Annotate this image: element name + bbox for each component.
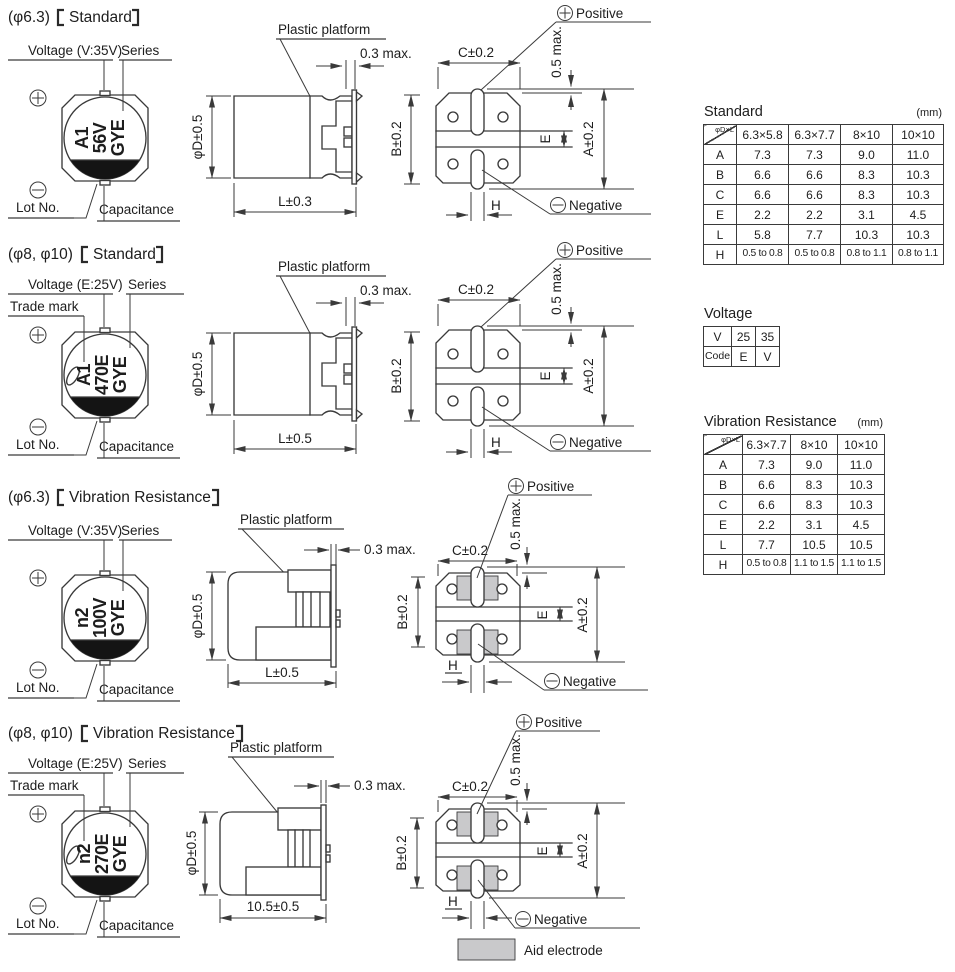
hole <box>498 159 508 169</box>
diameter-dim: φD±0.5 <box>190 352 205 397</box>
top-terminal-tab <box>100 571 110 576</box>
a-dim: A±0.2 <box>581 121 596 156</box>
col-header: 6.3×5.8 <box>737 125 789 145</box>
cell: 3.1 <box>841 205 893 225</box>
cell: 10.3 <box>893 185 944 205</box>
left-lenticular-bracket <box>82 726 88 741</box>
plus-icon <box>30 806 46 822</box>
aid-electrode-pad <box>457 866 471 890</box>
cell: 9.0 <box>841 145 893 165</box>
cell: 10.3 <box>838 475 885 495</box>
positive-terminal-slot <box>471 567 484 607</box>
platform-bottom-step <box>256 627 331 660</box>
plus-icon <box>558 243 573 258</box>
vibration-dimension-table: φD×L 6.3×7.7 8×10 10×10 A7.39.011.0 B6.6… <box>703 434 885 575</box>
trademark-label: Trade mark <box>10 299 79 314</box>
row-label: E <box>704 205 737 225</box>
hole <box>447 584 457 594</box>
positive-label: Positive <box>576 6 623 21</box>
length-dim: L±0.5 <box>265 665 299 680</box>
protrusion-dim: 0.5 max. <box>508 498 523 550</box>
hole <box>447 820 457 830</box>
positive-label: Positive <box>535 715 582 730</box>
negative-terminal-slot <box>471 150 484 189</box>
section-3-bottom-view: C±0.2 0.5 max. A±0.2 E H Positive Negati… <box>436 479 648 694</box>
bottom-terminal-tab <box>100 181 110 186</box>
cell: 0.8 to 1.1 <box>841 245 893 265</box>
minus-icon <box>551 435 566 450</box>
platform-top-step <box>288 570 331 592</box>
plus-icon <box>558 6 573 21</box>
row-label: V <box>704 327 732 347</box>
clearance-dim: 0.3 max. <box>360 283 412 298</box>
voltage-label: Voltage (V:35V) <box>28 523 122 538</box>
vibration-table-title: Vibration Resistance <box>704 414 837 430</box>
clearance-dim: 0.3 max. <box>364 542 416 557</box>
cell: 35 <box>756 327 780 347</box>
hole <box>448 112 458 122</box>
minus-icon <box>516 912 531 927</box>
row-label: H <box>704 245 737 265</box>
cell: 10.3 <box>838 495 885 515</box>
marking-cap-voltage: 270E <box>92 833 112 874</box>
vibration-table-header: Vibration Resistance (mm) <box>704 414 883 430</box>
section-3-top-view: n2 100V GYE Voltage (V:35V) Series Lot N… <box>8 523 180 701</box>
cell: E <box>732 347 756 367</box>
cell: 7.3 <box>737 145 789 165</box>
aid-electrode-pad <box>484 630 498 654</box>
capacitance-label: Capacitance <box>99 918 174 933</box>
terminal-tip <box>357 173 363 182</box>
lot-label: Lot No. <box>16 916 60 931</box>
row-label: L <box>704 535 743 555</box>
section-4-title-name: Vibration Resistance <box>93 725 235 742</box>
positive-label: Positive <box>527 479 574 494</box>
series-label: Series <box>128 277 167 292</box>
positive-callout: Positive <box>477 479 592 579</box>
hole <box>497 820 507 830</box>
plus-icon <box>517 715 532 730</box>
section-4-bottom-view: C±0.2 0.5 max. A±0.2 E H Positive Negati… <box>436 715 640 930</box>
protrusion-dim: 0.5 max. <box>549 263 564 315</box>
minus-icon <box>30 419 46 435</box>
plus-icon <box>30 570 46 586</box>
standard-table: Standard (mm) φD×L 6.3×5.8 6.3×7.7 8×10 … <box>703 104 943 265</box>
hole <box>447 634 457 644</box>
length-dim: 10.5±0.5 <box>247 899 299 914</box>
col-header: 8×10 <box>791 435 838 455</box>
cell: 8.3 <box>791 495 838 515</box>
aid-electrode-pad <box>457 630 471 654</box>
section-2-top-view: A1 470E GYE Voltage (E:25V) Series Trade… <box>8 277 184 458</box>
cell: V <box>756 347 780 367</box>
standard-table-unit: (mm) <box>916 107 942 119</box>
cell: 9.0 <box>791 455 838 475</box>
cell: 2.2 <box>789 205 841 225</box>
col-header: 6.3×7.7 <box>743 435 791 455</box>
corner-cell: φD×L <box>704 125 737 145</box>
section-1-title: (φ6.3) Standard <box>8 9 138 26</box>
minus-icon <box>30 662 46 678</box>
left-lenticular-bracket <box>82 247 88 262</box>
cell: 5.8 <box>737 225 789 245</box>
cell: 10.5 <box>791 535 838 555</box>
e-dim: E <box>538 371 553 380</box>
marking-series: GYE <box>110 835 130 872</box>
cell: 7.3 <box>743 455 791 475</box>
marking-cap-voltage: 470E <box>92 354 112 395</box>
plastic-platform-label: Plastic platform <box>240 512 332 527</box>
capacitance-label: Capacitance <box>99 439 174 454</box>
hole <box>497 870 507 880</box>
marking-series: GYE <box>108 119 128 156</box>
plastic-platform-label: Plastic platform <box>278 22 370 37</box>
left-lenticular-bracket <box>58 10 64 25</box>
c-dim: C±0.2 <box>452 779 488 794</box>
plus-icon <box>30 327 46 343</box>
minus-icon <box>30 182 46 198</box>
col-header: 10×10 <box>838 435 885 455</box>
row-label: C <box>704 185 737 205</box>
negative-terminal-slot <box>471 624 484 662</box>
e-dim: E <box>538 134 553 143</box>
capacitor-body <box>234 333 352 415</box>
cell: 6.6 <box>789 165 841 185</box>
clearance-dim: 0.3 max. <box>360 46 412 61</box>
voltage-code-table: V2535 CodeEV <box>703 326 780 367</box>
cell: 7.3 <box>789 145 841 165</box>
plastic-platform-label: Plastic platform <box>278 259 370 274</box>
positive-callout: Positive <box>481 243 651 328</box>
marking-cap-voltage: 100V <box>90 597 110 638</box>
cell: 10.3 <box>841 225 893 245</box>
b-dim: B±0.2 <box>389 121 404 156</box>
positive-terminal-slot <box>471 89 484 135</box>
protrusion-dim: 0.5 max. <box>508 734 523 786</box>
platform-column <box>296 592 320 627</box>
section-1: (φ6.3) Standard A1 56V GYE Voltage (V:35… <box>8 6 651 222</box>
row-label: A <box>704 455 743 475</box>
positive-terminal-slot <box>471 326 484 372</box>
right-lenticular-bracket <box>212 490 218 505</box>
capacitance-label: Capacitance <box>99 682 174 697</box>
diameter-dim: φD±0.5 <box>190 115 205 160</box>
section-3-title-prefix: (φ6.3) <box>8 489 50 506</box>
hole <box>498 396 508 406</box>
length-dim: L±0.5 <box>278 431 312 446</box>
capacitance-label: Capacitance <box>99 202 174 217</box>
section-1-side-view: Plastic platform 0.3 max. φD±0.5 L±0.3 B… <box>190 22 420 217</box>
negative-label: Negative <box>569 198 622 213</box>
hole <box>448 349 458 359</box>
negative-label: Negative <box>563 674 616 689</box>
section-4: (φ8, φ10) Vibration Resistance n2 270E G… <box>8 715 640 938</box>
section-1-bottom-view: C±0.2 0.5 max. A±0.2 E H Positive Negati… <box>436 6 651 222</box>
standard-table-title: Standard <box>704 104 763 120</box>
cell: 6.6 <box>737 165 789 185</box>
marking-lot-code: A1 <box>74 364 94 386</box>
platform-bottom-step <box>246 867 321 895</box>
b-dim: B±0.2 <box>394 835 409 870</box>
voltage-table-header: Voltage <box>704 306 778 322</box>
voltage-label: Voltage (E:25V) <box>28 756 123 771</box>
lot-label: Lot No. <box>16 200 60 215</box>
cell: 7.7 <box>789 225 841 245</box>
aid-electrode-pad <box>457 576 471 600</box>
seating-plate <box>321 805 326 900</box>
top-terminal-tab <box>100 328 110 333</box>
right-lenticular-bracket <box>236 726 242 741</box>
a-dim: A±0.2 <box>581 358 596 393</box>
col-header: 10×10 <box>893 125 944 145</box>
cell: 6.6 <box>743 475 791 495</box>
h-dim: H <box>448 894 458 909</box>
marking-lot-code: n2 <box>72 608 92 628</box>
row-label: C <box>704 495 743 515</box>
series-label: Series <box>121 43 160 58</box>
terminal-tip <box>357 92 363 101</box>
minus-icon <box>551 198 566 213</box>
protrusion-dim: 0.5 max. <box>549 26 564 78</box>
voltage-table: Voltage V2535 CodeEV <box>703 306 779 367</box>
b-dim: B±0.2 <box>389 358 404 393</box>
series-label: Series <box>128 756 167 771</box>
marking-lot-code: A1 <box>72 127 92 149</box>
aid-electrode-pad <box>484 576 498 600</box>
voltage-label: Voltage (V:35V) <box>28 43 122 58</box>
section-3-title-name: Vibration Resistance <box>69 489 211 506</box>
cell: 2.2 <box>743 515 791 535</box>
aid-electrode-pad <box>484 866 498 890</box>
corner-cell: φD×L <box>704 435 743 455</box>
cell: 2.2 <box>737 205 789 225</box>
length-dim: L±0.3 <box>278 194 312 209</box>
marking-cap-voltage: 56V <box>90 122 110 153</box>
platform-column <box>288 830 310 867</box>
section-4-top-view: n2 270E GYE Voltage (E:25V) Series Trade… <box>8 756 184 937</box>
seating-plate <box>331 565 336 667</box>
hole <box>497 584 507 594</box>
vibration-table-unit: (mm) <box>857 417 883 429</box>
cell: 25 <box>732 327 756 347</box>
vibration-table: Vibration Resistance (mm) φD×L 6.3×7.7 8… <box>703 414 884 575</box>
section-1-title-prefix: (φ6.3) <box>8 9 50 26</box>
hole <box>498 349 508 359</box>
row-label: H <box>704 555 743 575</box>
plastic-platform-label: Plastic platform <box>230 740 322 755</box>
left-lenticular-bracket <box>58 490 64 505</box>
top-terminal-tab <box>100 807 110 812</box>
series-label: Series <box>121 523 160 538</box>
section-2-bottom-view: C±0.2 0.5 max. A±0.2 E H Positive Negati… <box>436 243 651 459</box>
clearance-dim: 0.3 max. <box>354 778 406 793</box>
cell: 8.3 <box>841 165 893 185</box>
row-label: A <box>704 145 737 165</box>
cell: 0.8 to 1.1 <box>893 245 944 265</box>
cell: 1.1 to 1.5 <box>791 555 838 575</box>
standard-dimension-table: φD×L 6.3×5.8 6.3×7.7 8×10 10×10 A7.37.39… <box>703 124 944 265</box>
lot-label: Lot No. <box>16 680 60 695</box>
h-dim: H <box>491 435 501 450</box>
negative-terminal-slot <box>471 860 484 898</box>
lot-label: Lot No. <box>16 437 60 452</box>
hole <box>448 159 458 169</box>
minus-icon <box>30 898 46 914</box>
terminal-tip <box>357 410 363 419</box>
section-4-title: (φ8, φ10) Vibration Resistance <box>8 725 242 742</box>
capacitor-dimension-sheet: (φ6.3) Standard A1 56V GYE Voltage (V:35… <box>0 0 955 972</box>
cell: 10.5 <box>838 535 885 555</box>
minus-icon <box>545 674 560 689</box>
section-3: (φ6.3) Vibration Resistance n2 100V GYE … <box>8 479 648 702</box>
col-header: 8×10 <box>841 125 893 145</box>
seating-plate <box>352 327 357 421</box>
e-dim: E <box>535 846 550 855</box>
bottom-terminal-tab <box>100 418 110 423</box>
negative-label: Negative <box>569 435 622 450</box>
positive-callout: Positive <box>481 6 651 91</box>
cell: 10.3 <box>893 225 944 245</box>
hole <box>498 112 508 122</box>
cell: 0.5 to 0.8 <box>743 555 791 575</box>
section-3-title: (φ6.3) Vibration Resistance <box>8 489 218 506</box>
h-dim: H <box>448 658 458 673</box>
hole <box>497 634 507 644</box>
hole <box>447 870 457 880</box>
cell: 10.3 <box>893 165 944 185</box>
top-terminal-tab <box>100 91 110 96</box>
marking-series: GYE <box>108 599 128 636</box>
platform-top-step <box>278 808 321 830</box>
seating-plate <box>352 90 357 184</box>
negative-label: Negative <box>534 912 587 927</box>
row-label: B <box>704 165 737 185</box>
cell: 7.7 <box>743 535 791 555</box>
section-2-title: (φ8, φ10) Standard <box>8 246 162 263</box>
aid-electrode-legend: Aid electrode <box>458 939 603 960</box>
aid-electrode-swatch <box>458 939 515 960</box>
terminal-tip <box>357 329 363 338</box>
section-2-title-prefix: (φ8, φ10) <box>8 246 73 263</box>
section-1-top-view: A1 56V GYE Voltage (V:35V) Series Lot No… <box>8 43 180 221</box>
section-4-side-view: Plastic platform 0.3 max. φD±0.5 10.5±0.… <box>184 740 424 923</box>
diameter-dim: φD±0.5 <box>184 831 199 876</box>
cell: 8.3 <box>841 185 893 205</box>
aid-electrode-pad <box>457 812 471 836</box>
capacitor-body <box>234 96 352 178</box>
c-dim: C±0.2 <box>458 282 494 297</box>
cell: 6.6 <box>737 185 789 205</box>
h-dim: H <box>491 198 501 213</box>
row-label: L <box>704 225 737 245</box>
voltage-table-title: Voltage <box>704 306 752 322</box>
positive-callout: Positive <box>477 715 600 815</box>
row-label: Code <box>704 347 732 367</box>
right-lenticular-bracket <box>132 10 138 25</box>
hole <box>448 396 458 406</box>
a-dim: A±0.2 <box>575 833 590 868</box>
marking-series: GYE <box>110 356 130 393</box>
cell: 6.6 <box>743 495 791 515</box>
cell: 1.1 to 1.5 <box>838 555 885 575</box>
bottom-terminal-tab <box>100 897 110 902</box>
plus-icon <box>509 479 524 494</box>
cell: 6.6 <box>789 185 841 205</box>
aid-electrode-label: Aid electrode <box>524 943 603 958</box>
cell: 0.5 to 0.8 <box>789 245 841 265</box>
trademark-label: Trade mark <box>10 778 79 793</box>
right-lenticular-bracket <box>156 247 162 262</box>
marking-lot-code: n2 <box>74 844 94 864</box>
standard-table-header: Standard (mm) <box>704 104 942 120</box>
section-2-side-view: Plastic platform 0.3 max. φD±0.5 L±0.5 B… <box>190 259 420 454</box>
cell: 0.5 to 0.8 <box>737 245 789 265</box>
a-dim: A±0.2 <box>575 597 590 632</box>
negative-terminal-slot <box>471 387 484 426</box>
row-label: B <box>704 475 743 495</box>
row-label: E <box>704 515 743 535</box>
e-dim: E <box>535 610 550 619</box>
section-1-title-name: Standard <box>69 9 132 26</box>
cell: 4.5 <box>838 515 885 535</box>
col-header: 6.3×7.7 <box>789 125 841 145</box>
cell: 11.0 <box>838 455 885 475</box>
positive-terminal-slot <box>471 803 484 843</box>
bottom-terminal-tab <box>100 661 110 666</box>
diameter-dim: φD±0.5 <box>190 594 205 639</box>
voltage-label: Voltage (E:25V) <box>28 277 123 292</box>
positive-label: Positive <box>576 243 623 258</box>
c-dim: C±0.2 <box>458 45 494 60</box>
b-dim: B±0.2 <box>395 594 410 629</box>
section-3-side-view: Plastic platform 0.3 max. φD±0.5 L±0.5 B… <box>190 512 425 688</box>
aid-electrode-pad <box>484 812 498 836</box>
cell: 8.3 <box>791 475 838 495</box>
section-2: (φ8, φ10) Standard A1 470E GYE Voltage (… <box>8 243 651 459</box>
cell: 3.1 <box>791 515 838 535</box>
cell: 4.5 <box>893 205 944 225</box>
section-4-title-prefix: (φ8, φ10) <box>8 725 73 742</box>
c-dim: C±0.2 <box>452 543 488 558</box>
plus-icon <box>30 90 46 106</box>
cell: 11.0 <box>893 145 944 165</box>
section-2-title-name: Standard <box>93 246 156 263</box>
